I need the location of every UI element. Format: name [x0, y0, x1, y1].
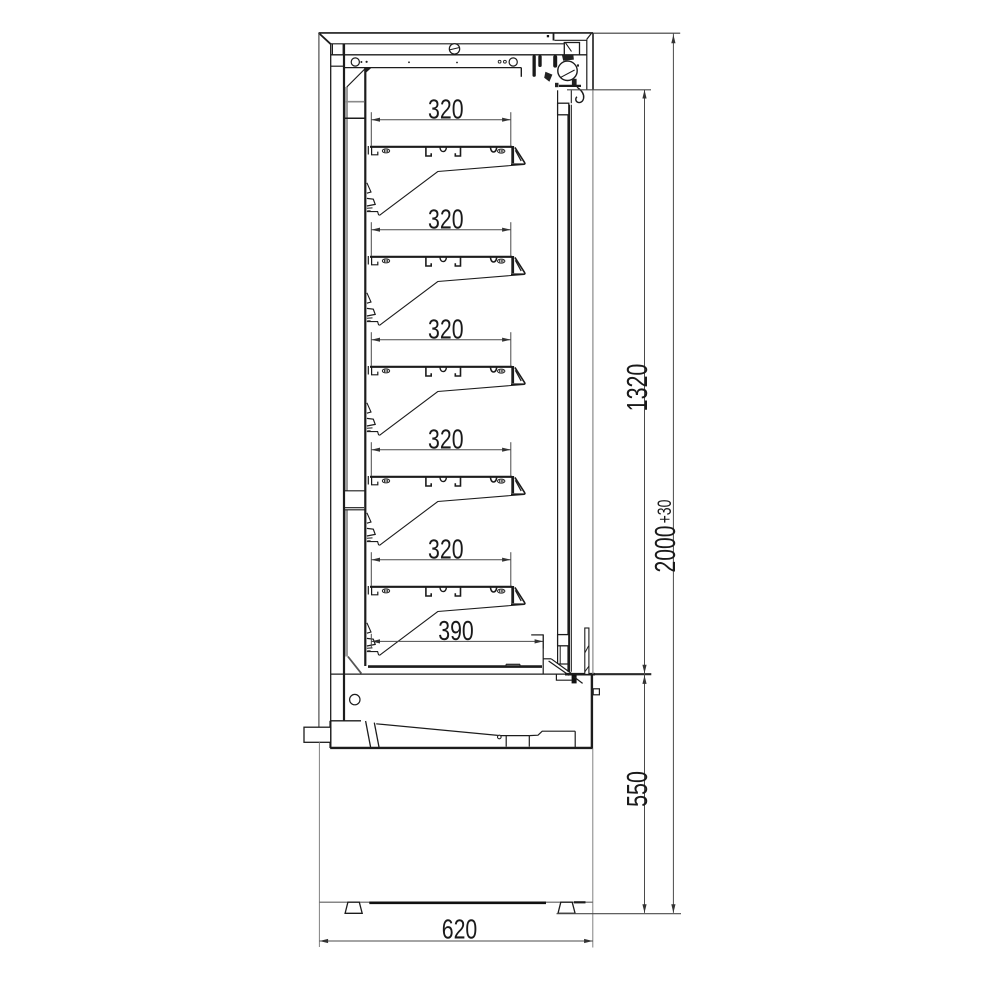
svg-text:2000: 2000	[650, 526, 682, 573]
svg-text:1320: 1320	[622, 364, 654, 412]
svg-text:320: 320	[428, 314, 463, 346]
svg-text:320: 320	[428, 424, 463, 456]
svg-text:+30: +30	[654, 500, 676, 524]
svg-text:320: 320	[428, 204, 463, 236]
svg-text:390: 390	[438, 615, 473, 647]
svg-text:320: 320	[428, 94, 463, 126]
svg-text:550: 550	[622, 771, 654, 807]
svg-text:620: 620	[442, 914, 477, 946]
svg-text:320: 320	[428, 534, 463, 566]
